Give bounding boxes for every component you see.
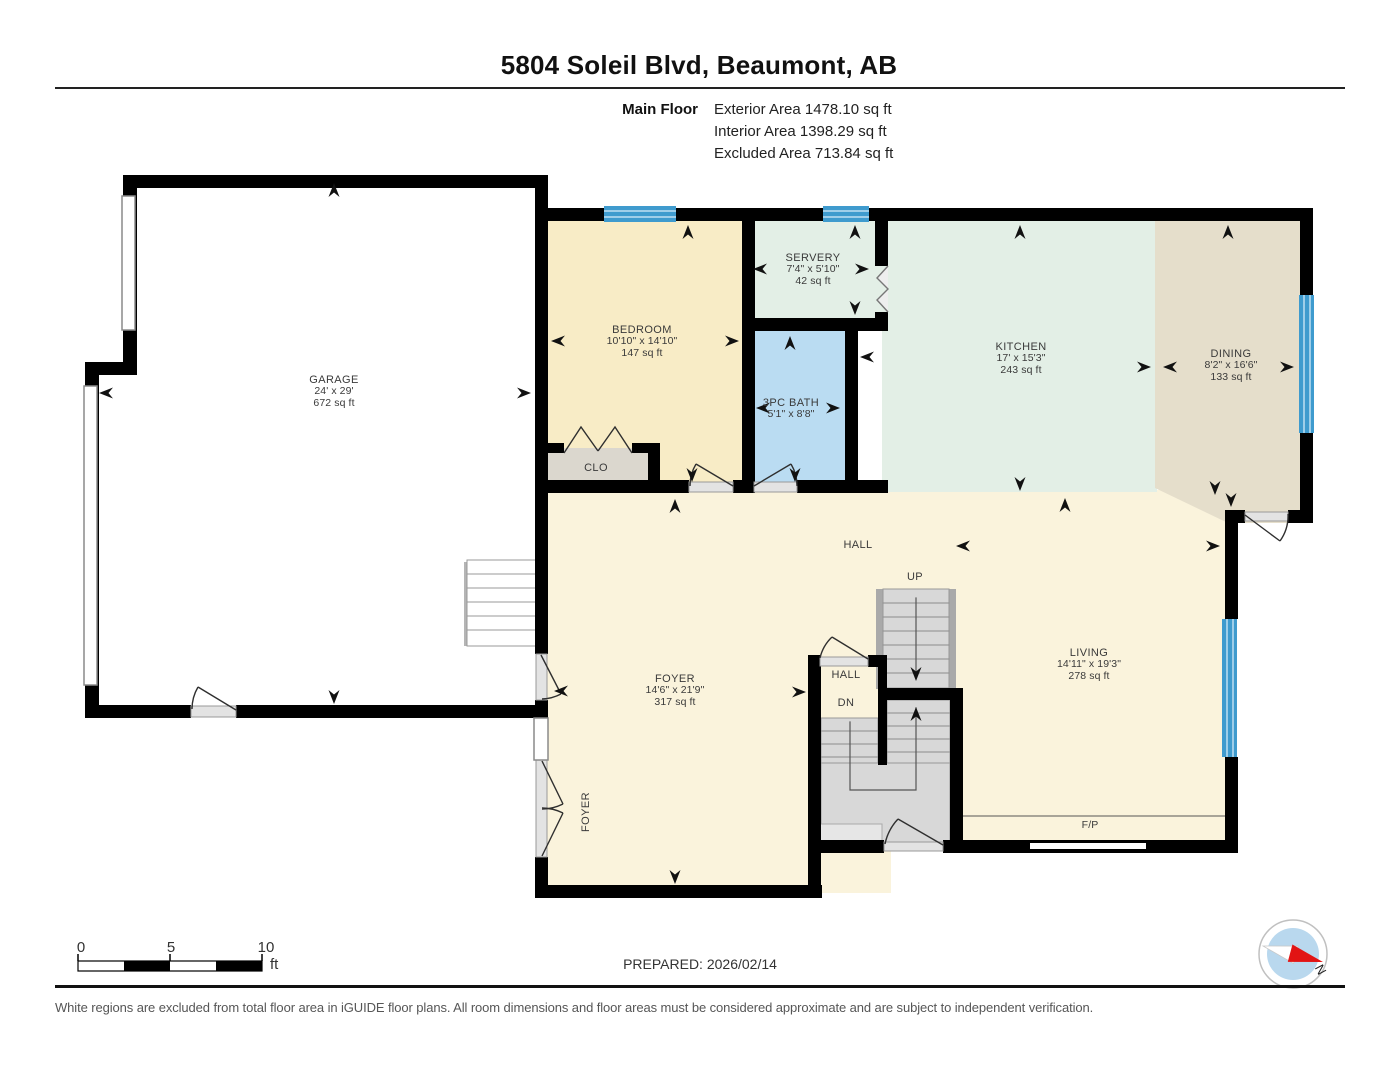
disclaimer-text: White regions are excluded from total fl… <box>55 1000 1155 1015</box>
fireplace-label: F/P <box>1082 820 1099 832</box>
bath-label: 3PC BATH 5'1" x 8'8" <box>763 397 819 421</box>
room-dims: 17' x 15'3" <box>995 353 1046 365</box>
hall-stairs-label: HALL <box>831 669 860 681</box>
scale-unit: ft <box>270 956 278 973</box>
foyer-label: FOYER 14'6" x 21'9" 317 sq ft <box>646 673 705 708</box>
garage-label: GARAGE 24' x 29' 672 sq ft <box>309 374 358 409</box>
header-divider <box>55 87 1345 89</box>
room-area: 672 sq ft <box>309 398 358 410</box>
room-area: 278 sq ft <box>1057 671 1121 683</box>
prepared-date: PREPARED: 2026/02/14 <box>623 956 777 972</box>
page-title: 5804 Soleil Blvd, Beaumont, AB <box>0 50 1398 81</box>
fp-text: F/P <box>1082 820 1099 832</box>
scale-tick-0: 0 <box>77 939 85 956</box>
footer-divider <box>55 985 1345 988</box>
area-stats: Exterior Area 1478.10 sq ft Interior Are… <box>714 101 893 167</box>
scale-tick-5: 5 <box>167 939 175 956</box>
room-area: 317 sq ft <box>646 697 705 709</box>
closet-label: CLO <box>584 462 608 474</box>
scale-tick-10: 10 <box>258 939 275 956</box>
dn-label: DN <box>838 697 855 709</box>
exterior-area: Exterior Area 1478.10 sq ft <box>714 101 893 123</box>
up-label: UP <box>907 571 923 583</box>
room-dims: 10'10" x 14'10" <box>607 336 678 348</box>
room-dims: 5'1" x 8'8" <box>763 409 819 421</box>
garage-windows <box>84 196 548 760</box>
room-name: HALL <box>843 539 872 551</box>
foyer-side-label: FOYER <box>580 792 592 832</box>
room-dims: 14'11" x 19'3" <box>1057 659 1121 671</box>
room-name: HALL <box>831 669 860 681</box>
servery-label: SERVERY 7'4" x 5'10" 42 sq ft <box>786 252 841 287</box>
fireplace-notch <box>1030 843 1146 849</box>
living-label: LIVING 14'11" x 19'3" 278 sq ft <box>1057 647 1121 682</box>
room-area: 243 sq ft <box>995 365 1046 377</box>
hall-main-label: HALL <box>843 539 872 551</box>
bedroom-label: BEDROOM 10'10" x 14'10" 147 sq ft <box>607 324 678 359</box>
excluded-area: Excluded Area 713.84 sq ft <box>714 145 893 167</box>
floor-label: Main Floor <box>420 101 698 118</box>
interior-area: Interior Area 1398.29 sq ft <box>714 123 893 145</box>
stairs-down-label: DN <box>838 697 855 709</box>
compass-icon <box>1259 920 1327 988</box>
stairs-up-label: UP <box>907 571 923 583</box>
room-dims: 8'2" x 16'6" <box>1205 360 1258 372</box>
room-dims: 7'4" x 5'10" <box>786 264 841 276</box>
dining-label: DINING 8'2" x 16'6" 133 sq ft <box>1205 348 1258 383</box>
room-name: CLO <box>584 462 608 474</box>
room-area: 147 sq ft <box>607 348 678 360</box>
kitchen-label: KITCHEN 17' x 15'3" 243 sq ft <box>995 341 1046 376</box>
floor-plan-drawing <box>0 0 1398 1080</box>
room-dims: 14'6" x 21'9" <box>646 685 705 697</box>
room-area: 42 sq ft <box>786 276 841 288</box>
room-dims: 24' x 29' <box>309 386 358 398</box>
floor-plan-page: 5804 Soleil Blvd, Beaumont, AB Main Floo… <box>0 0 1398 1080</box>
scale-bar <box>78 954 262 971</box>
room-area: 133 sq ft <box>1205 372 1258 384</box>
